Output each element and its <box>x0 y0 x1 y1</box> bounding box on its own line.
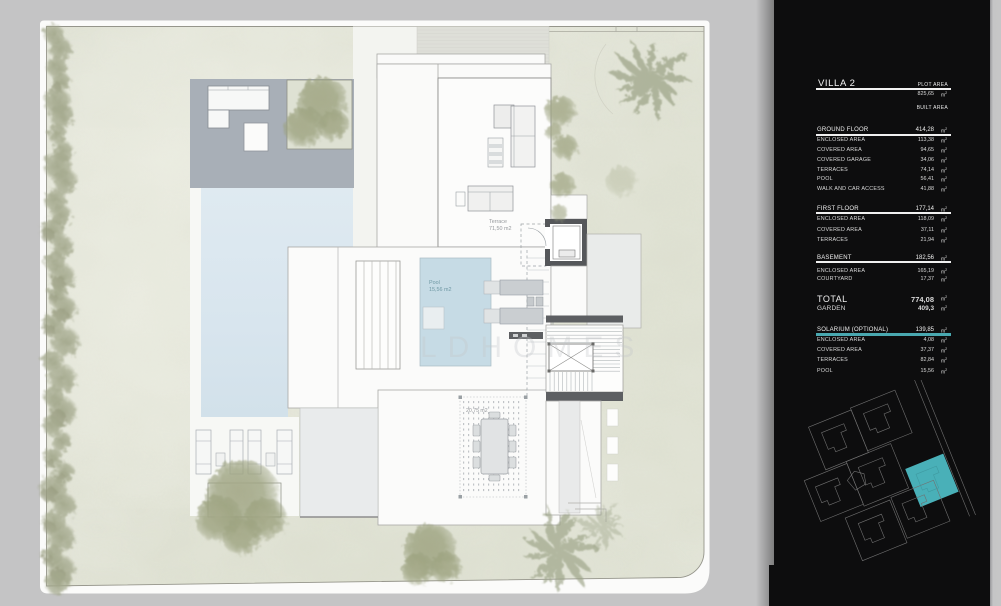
svg-text:20,75 m2: 20,75 m2 <box>466 408 488 414</box>
svg-text:15,56 m2: 15,56 m2 <box>429 287 451 293</box>
svg-text:71,50 m2: 71,50 m2 <box>489 226 511 232</box>
svg-text:Pool: Pool <box>429 280 440 286</box>
svg-text:Terrace: Terrace <box>489 219 507 225</box>
svg-text:LDHOMES: LDHOMES <box>420 331 645 364</box>
